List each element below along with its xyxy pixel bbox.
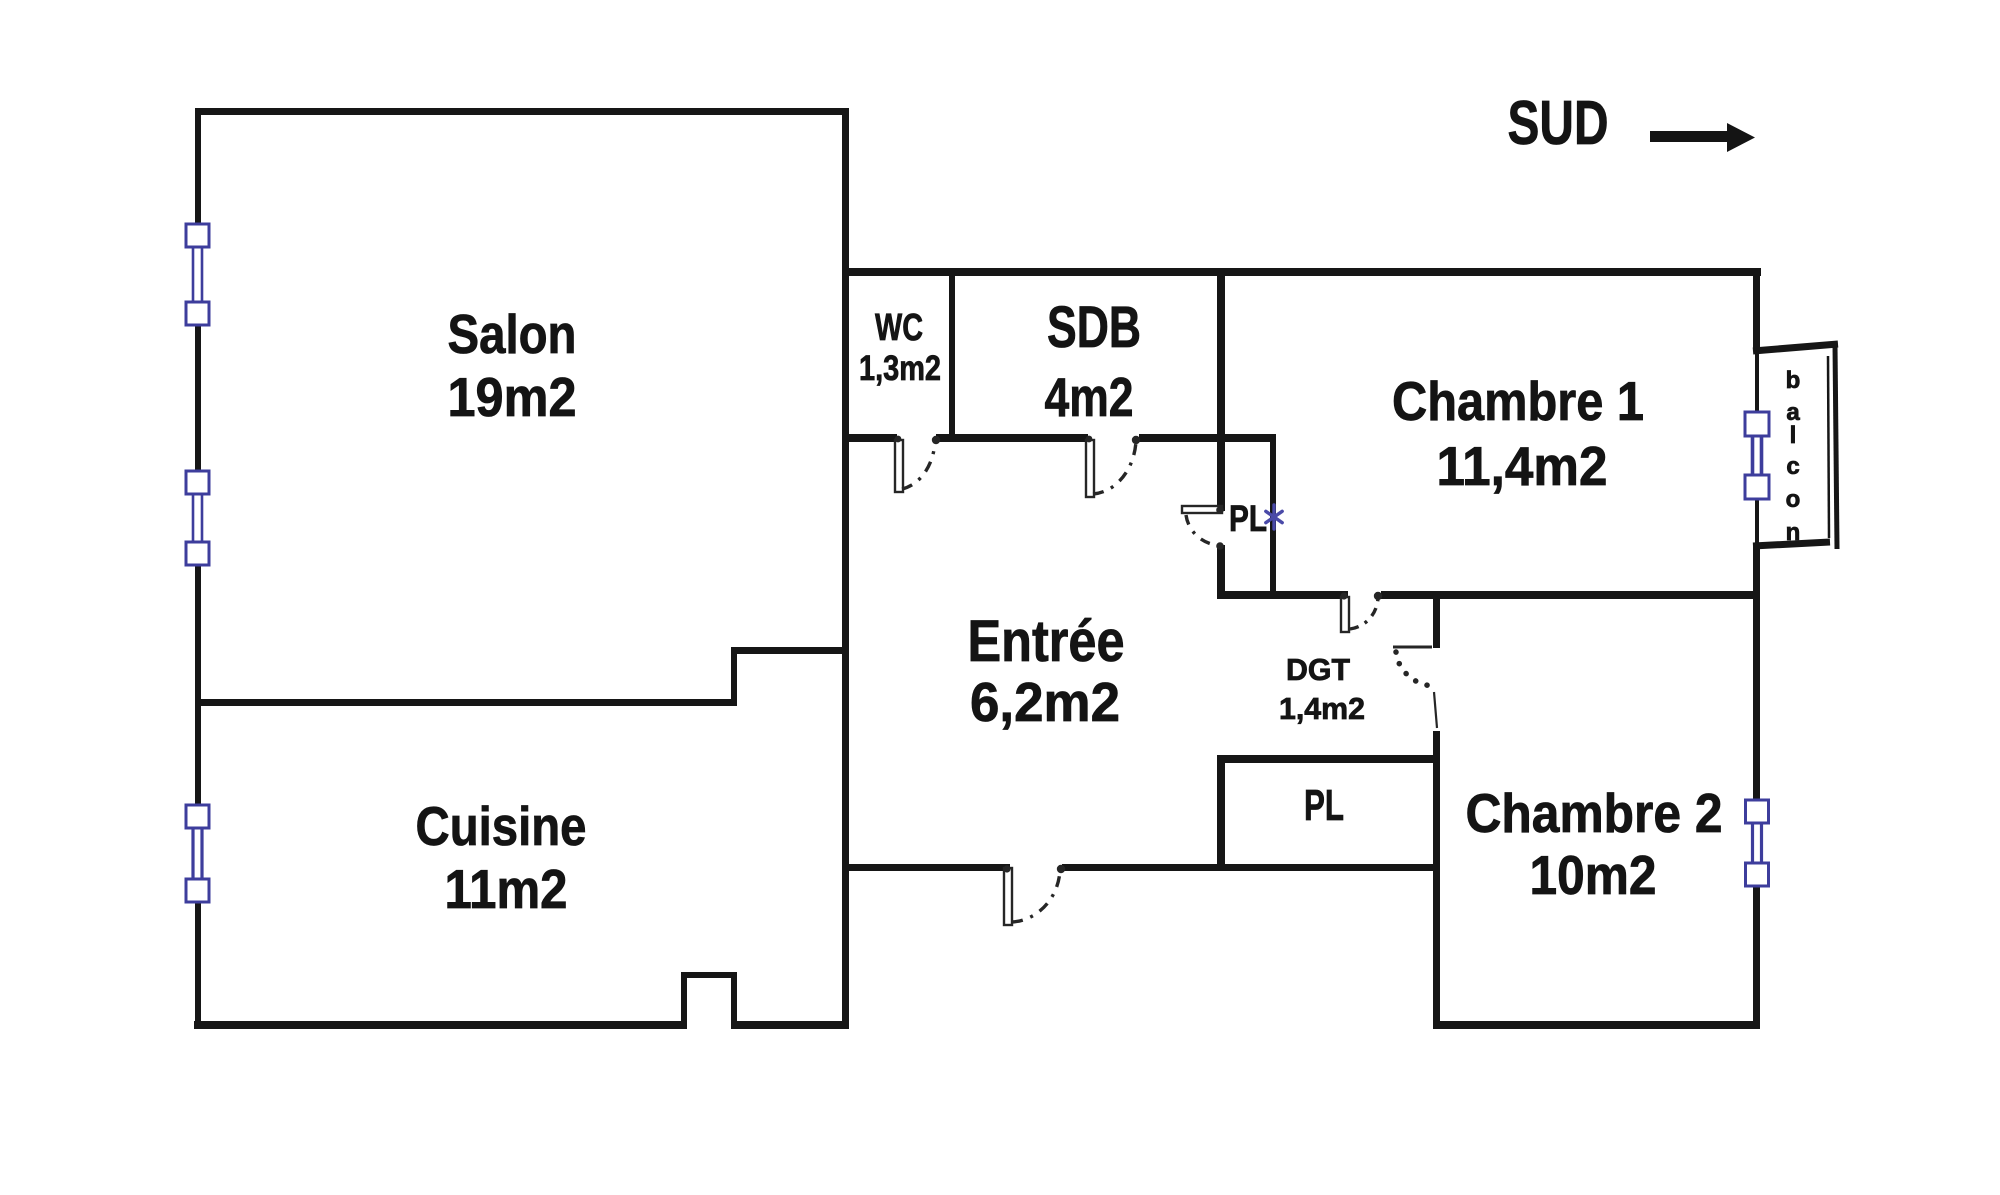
- svg-text:4m2: 4m2: [1045, 366, 1134, 428]
- svg-text:1,4m2: 1,4m2: [1279, 691, 1365, 726]
- svg-text:WC: WC: [875, 307, 923, 349]
- svg-text:l: l: [1790, 422, 1797, 449]
- svg-text:19m2: 19m2: [448, 366, 577, 428]
- svg-text:11m2: 11m2: [445, 858, 568, 920]
- svg-text:n: n: [1786, 519, 1801, 546]
- svg-text:11,4m2: 11,4m2: [1437, 435, 1608, 497]
- svg-text:Salon: Salon: [448, 303, 577, 365]
- svg-text:SDB: SDB: [1047, 295, 1141, 360]
- svg-text:SUD: SUD: [1508, 89, 1609, 158]
- svg-text:6,2m2: 6,2m2: [970, 671, 1120, 733]
- svg-text:Entrée: Entrée: [968, 609, 1125, 674]
- svg-text:c: c: [1786, 453, 1799, 480]
- svg-text:Chambre 1: Chambre 1: [1392, 370, 1644, 432]
- svg-text:10m2: 10m2: [1530, 844, 1657, 906]
- svg-text:PL: PL: [1229, 498, 1267, 539]
- svg-text:b: b: [1786, 367, 1801, 394]
- svg-text:Chambre 2: Chambre 2: [1466, 782, 1723, 844]
- svg-text:1,3m2: 1,3m2: [859, 349, 941, 388]
- svg-text:DGT: DGT: [1286, 652, 1350, 687]
- svg-text:Cuisine: Cuisine: [416, 795, 587, 857]
- svg-text:o: o: [1786, 486, 1801, 513]
- svg-text:PL: PL: [1304, 781, 1344, 830]
